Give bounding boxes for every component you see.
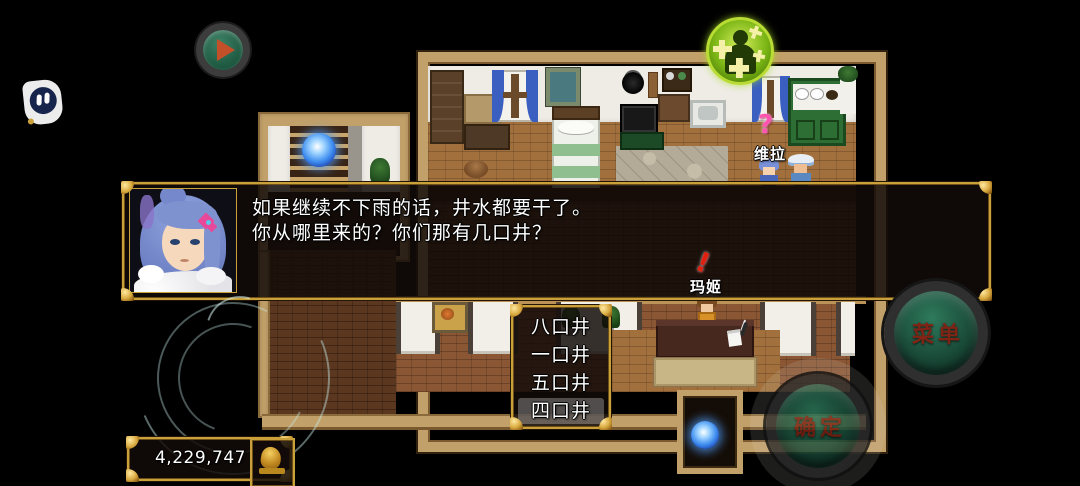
dialog-line-1: 如果继续不下雨的话，井水都要干了。 — [252, 196, 592, 221]
portrait-flower-deco — [140, 195, 154, 229]
buff-plus-icon — [752, 49, 766, 63]
gold-icon-frame — [250, 438, 295, 486]
hutch-door — [820, 120, 839, 140]
frame-corner-ornament — [126, 436, 139, 449]
hutch-plate — [795, 88, 809, 100]
painting-art — [441, 308, 454, 320]
bed-blanket-stripe — [552, 144, 600, 156]
npc-label-maggie: 玛姬 — [684, 276, 728, 297]
speaker-portrait — [129, 188, 237, 293]
bed-pillow — [558, 121, 594, 134]
shelf-item — [678, 72, 686, 80]
frame-corner-ornament — [126, 469, 139, 482]
bedroom-curtain-right — [526, 70, 538, 122]
corner-plant — [838, 66, 858, 82]
kitchen-shelf — [662, 68, 692, 92]
hutch-door — [796, 120, 815, 140]
floor-mat — [654, 358, 756, 386]
hutch-plate — [810, 88, 824, 100]
portrait-mouth — [180, 259, 189, 262]
menu-button[interactable]: 菜单 — [884, 281, 988, 385]
exit-orb — [691, 421, 719, 449]
bed-headboard — [552, 106, 600, 120]
closet-plant — [370, 158, 390, 184]
level-up-buff-icon — [706, 17, 774, 85]
hanging-pan — [622, 72, 644, 94]
gold-amount: 4,229,747 — [155, 448, 246, 468]
choice-option-2[interactable]: 一口井 — [518, 342, 604, 368]
assistive-bar — [44, 93, 49, 104]
dialog-line-2: 你从哪里来的？你们那有几口井？ — [252, 221, 552, 246]
choice-menu: 八口井 一口井 五口井 四口井 — [511, 305, 611, 429]
gold-statue-base — [259, 468, 285, 474]
kitchen-cupboard — [658, 94, 690, 122]
kitchen-base-cabinet — [620, 132, 664, 150]
frame-corner-ornament — [979, 288, 992, 301]
gold-statue-icon — [259, 445, 283, 470]
hat-face — [794, 164, 807, 173]
choice-list: 八口井 一口井 五口井 四口井 — [513, 307, 609, 431]
frame-corner-ornament — [979, 181, 992, 194]
menu-button-label: 菜单 — [908, 317, 964, 349]
portrait-bow-gem — [206, 220, 211, 225]
confirm-button-label: 确定 — [790, 410, 846, 442]
cabinet-dark — [464, 124, 510, 150]
bottom-window-e — [836, 302, 855, 356]
choice-option-1[interactable]: 八口井 — [518, 314, 604, 340]
stove — [620, 104, 658, 134]
sink-basin — [698, 106, 718, 120]
buff-plus-icon — [747, 24, 764, 41]
confirm-button[interactable]: 确定 — [766, 374, 870, 478]
question-balloon-icon: ? — [758, 110, 773, 140]
vera-face — [763, 167, 775, 175]
play-icon — [217, 39, 235, 61]
portrait-eye — [190, 239, 200, 245]
save-orb-closet — [302, 133, 336, 167]
bed-blanket-stripe — [552, 166, 600, 178]
maggie-face — [701, 304, 713, 312]
stool — [464, 160, 488, 178]
cutting-board — [648, 72, 658, 98]
buff-figure-head — [733, 30, 748, 45]
hutch-pot — [826, 90, 838, 100]
wall-picture — [546, 68, 580, 106]
portrait-fur-tuft — [138, 265, 164, 283]
dresser-tall — [430, 70, 464, 144]
assistive-bar — [36, 94, 41, 105]
bottom-wall-painting — [432, 302, 468, 333]
assistive-dot — [28, 118, 35, 125]
shelf-item — [666, 72, 674, 80]
buff-plus-icon — [729, 58, 749, 78]
choice-option-4-selected[interactable]: 四口井 — [518, 398, 604, 424]
npc-label-vera: 维拉 — [750, 143, 790, 164]
game-screen: 维拉 ? — [0, 0, 1080, 486]
portrait-eye — [170, 239, 180, 245]
bedroom-window-bar — [503, 92, 527, 98]
choice-option-3[interactable]: 五口井 — [518, 370, 604, 396]
buff-plus-icon — [713, 40, 732, 59]
play-button[interactable] — [196, 23, 250, 77]
assistive-touch-icon[interactable] — [22, 78, 67, 128]
